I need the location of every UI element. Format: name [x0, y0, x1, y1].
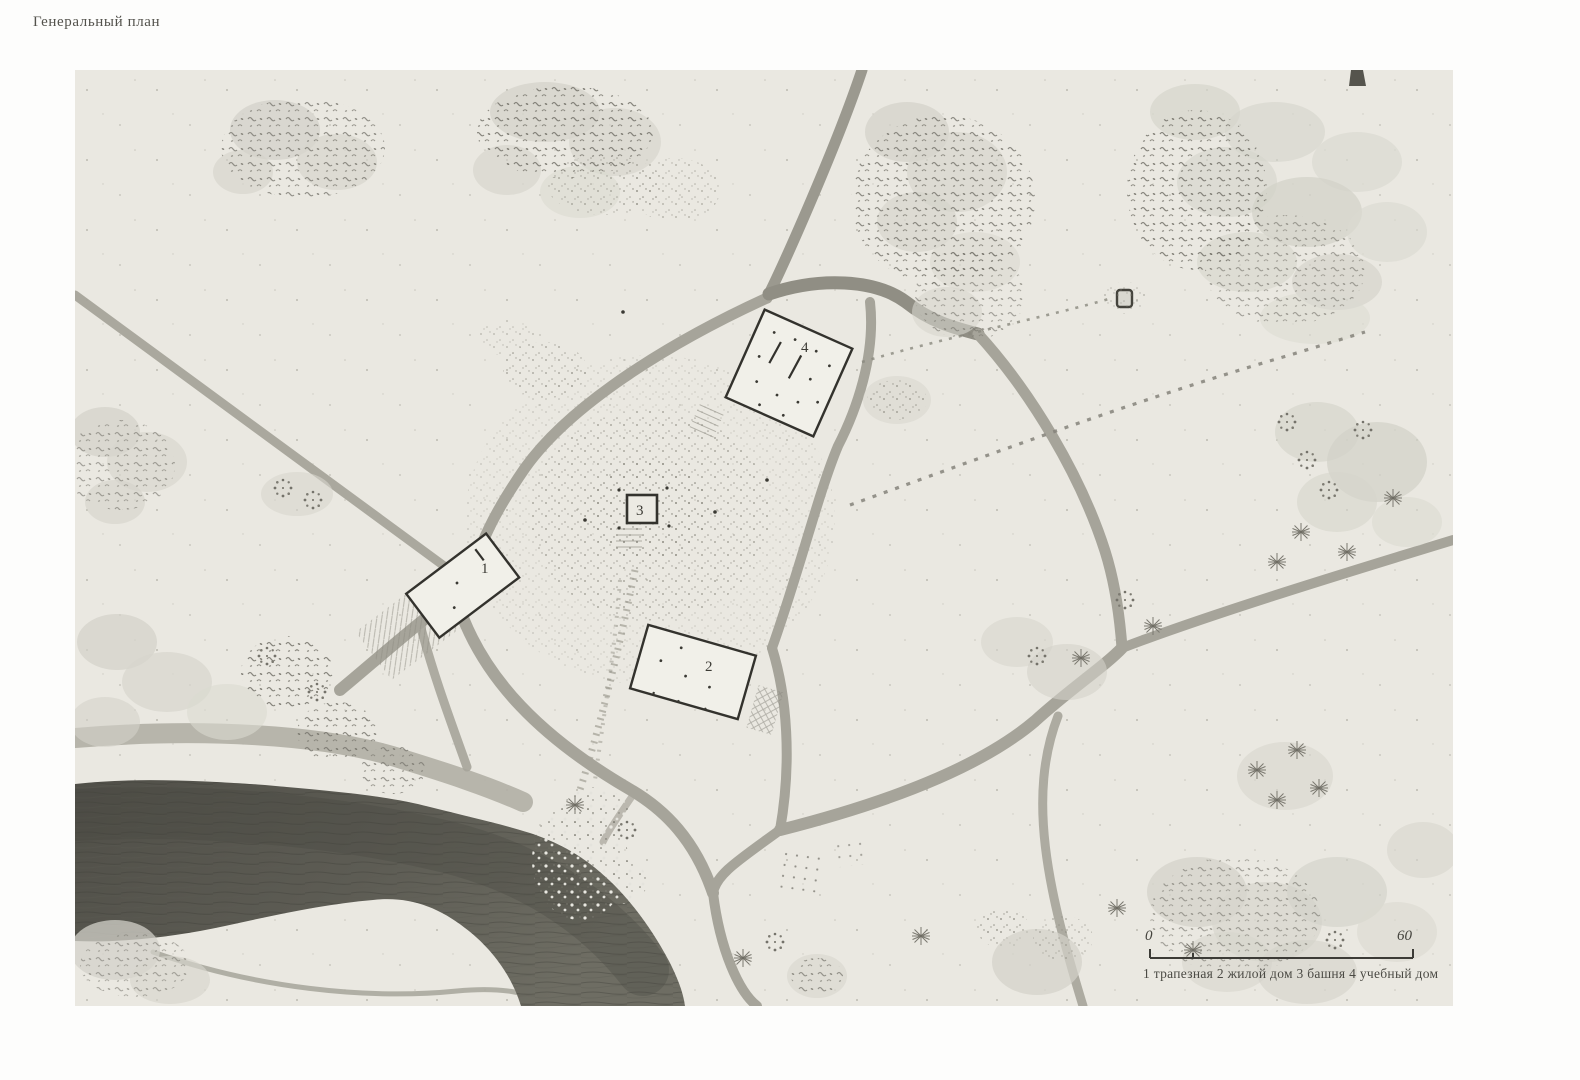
building-3-label: 3 [636, 503, 644, 519]
building-4-label: 4 [801, 340, 809, 356]
tree-cluster [863, 376, 931, 424]
site-plan-drawing: 1 2 3 4 0 60 1 трапезная 2 жилой дом 3 б… [75, 70, 1453, 1006]
page: Генеральный план [0, 0, 1580, 1080]
building-2-label: 2 [705, 659, 713, 675]
building-1-label: 1 [481, 561, 489, 577]
page-title: Генеральный план [33, 14, 160, 31]
scale-end-label: 60 [1397, 928, 1413, 944]
small-structure [1103, 282, 1147, 314]
tree-cluster [213, 98, 385, 198]
tree-cluster [261, 472, 333, 516]
tree-trunk-mark [1349, 70, 1366, 86]
legend-caption: 1 трапезная 2 жилой дом 3 башня 4 учебны… [1143, 966, 1438, 981]
site-plan-canvas: 1 2 3 4 0 60 1 трапезная 2 жилой дом 3 б… [75, 70, 1453, 1006]
scale-start-label: 0 [1145, 928, 1153, 944]
